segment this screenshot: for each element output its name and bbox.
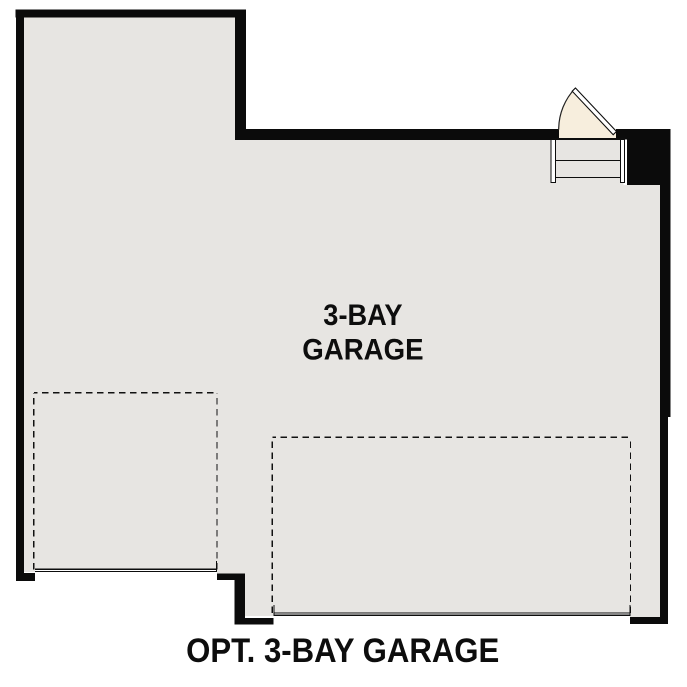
svg-text:OPT. 3-BAY GARAGE: OPT. 3-BAY GARAGE — [186, 632, 499, 670]
svg-text:3-BAY: 3-BAY — [323, 299, 403, 332]
svg-text:GARAGE: GARAGE — [302, 334, 423, 367]
